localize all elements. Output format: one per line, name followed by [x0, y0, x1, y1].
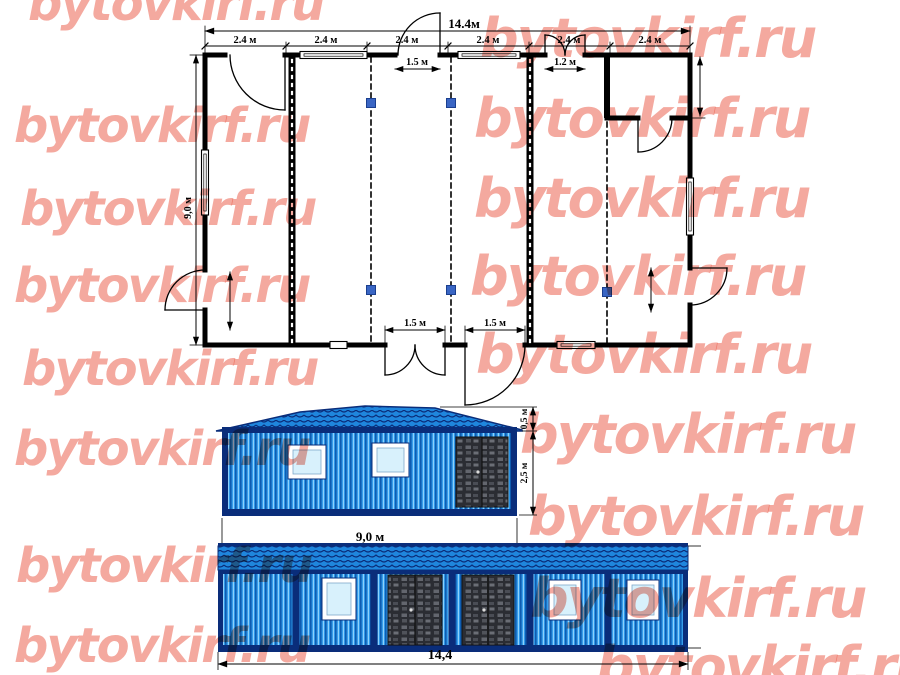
plan-depth-dim: 9,0 м [183, 197, 194, 219]
building-plan-drawing: 14.4м 2.4 м 2.4 м 2.4 м 2.4 м 2.4 м 2.4 … [0, 0, 900, 675]
side-window-1 [288, 445, 326, 479]
side-roof-rise-dim: 0,5 м [520, 408, 530, 429]
door-interior-top-right [638, 118, 672, 152]
window-top-2 [458, 52, 520, 59]
bay-dim-6: 2.4 м [639, 35, 662, 46]
front-window-1 [322, 578, 356, 620]
front-width-dim: 14,4 [428, 648, 453, 663]
front-roof-band [218, 546, 688, 570]
bay-dim-2: 2.4 м [315, 35, 338, 46]
plan-overall-dim: 14.4м [448, 16, 480, 31]
door-left-exterior [165, 270, 205, 310]
window-bottom-2 [557, 342, 595, 349]
door-top-left [230, 55, 285, 110]
front-window-2 [549, 580, 581, 620]
bottom-door-left-dim: 1.5 м [404, 318, 426, 329]
side-elevation: 9,0 м 0,5 м 2,5 м [216, 406, 537, 553]
dashed-partitions [371, 57, 607, 343]
side-wall-height-dim: 2,5 м [520, 462, 530, 483]
window-top-1 [300, 52, 367, 59]
floor-plan: 14.4м 2.4 м 2.4 м 2.4 м 2.4 м 2.4 м 2.4 … [165, 13, 727, 405]
front-door-2 [462, 575, 514, 645]
side-window-2 [372, 443, 409, 477]
bay-dim-3: 2.4 м [396, 35, 419, 46]
door-right-exterior [690, 268, 727, 305]
window-bottom-1 [330, 342, 347, 349]
front-door-1 [388, 575, 442, 645]
window-left [202, 150, 209, 215]
plan-dimensions: 14.4м 2.4 м 2.4 м 2.4 м 2.4 м 2.4 м 2.4 … [183, 16, 705, 345]
window-right [687, 178, 694, 235]
drawing-page: 14.4м 2.4 м 2.4 м 2.4 м 2.4 м 2.4 м 2.4 … [0, 0, 900, 675]
plan-windows [202, 52, 694, 349]
bottom-door-right-dim: 1.5 м [484, 318, 506, 329]
door-bottom-single [465, 345, 525, 405]
bay-dim-4: 2.4 м [477, 35, 500, 46]
front-elevation: 14,4 [218, 543, 701, 670]
heater-markers [367, 99, 612, 297]
top-door-dim: 1.5 м [406, 57, 428, 68]
door-bottom-double [385, 345, 445, 375]
bay-dim-5: 2.4 м [558, 35, 581, 46]
side-door [456, 437, 508, 507]
bay-dim-1: 2.4 м [234, 35, 257, 46]
door-top-a [398, 13, 440, 55]
front-window-3 [627, 580, 659, 620]
top-double-door-dim: 1.2 м [554, 57, 576, 68]
side-width-dim: 9,0 м [356, 529, 385, 544]
